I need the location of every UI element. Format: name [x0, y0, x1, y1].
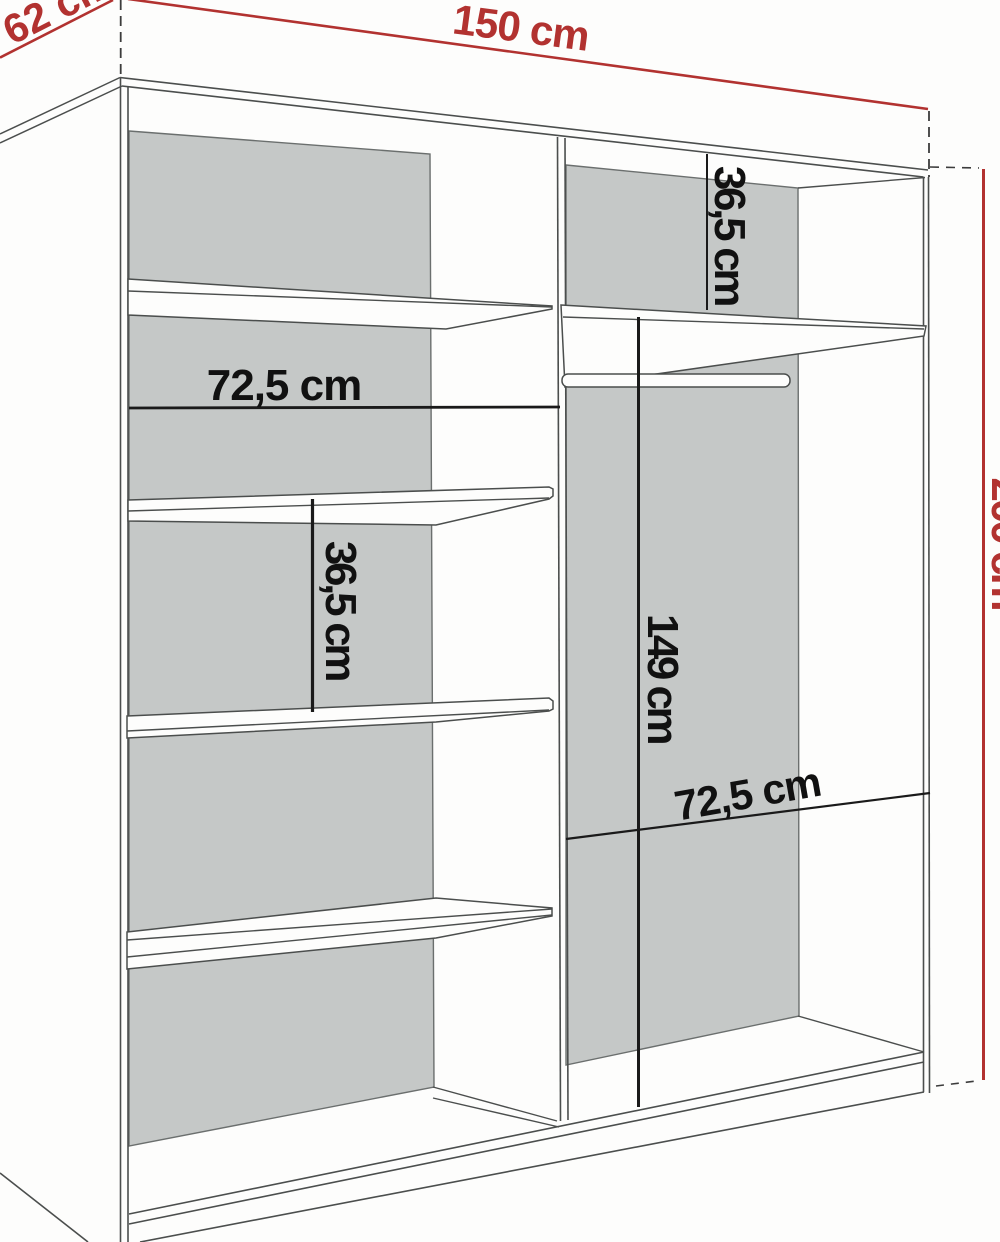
- svg-text:200 cm: 200 cm: [982, 477, 1000, 609]
- svg-text:36,5 cm: 36,5 cm: [316, 541, 365, 681]
- svg-text:72,5 cm: 72,5 cm: [207, 361, 361, 410]
- svg-text:36,5 cm: 36,5 cm: [705, 166, 754, 306]
- svg-text:149 cm: 149 cm: [638, 614, 687, 744]
